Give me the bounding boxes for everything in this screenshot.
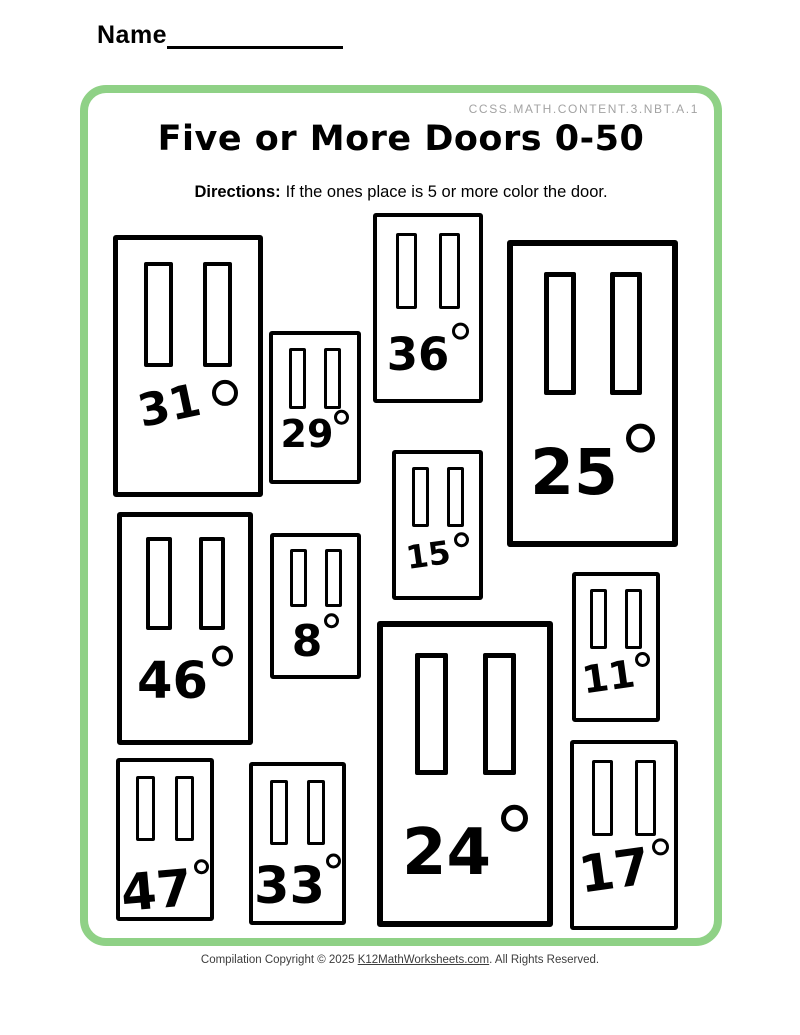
door-panel [199,537,225,630]
door-number: 8 [292,620,323,664]
door-number: 33 [254,861,325,912]
doorknob-icon [212,646,233,667]
door-panel [175,776,194,841]
footer: Compilation Copyright © 2025 K12MathWork… [0,954,800,966]
footer-link[interactable]: K12MathWorksheets.com [358,954,489,966]
doorknob-icon [194,859,209,874]
door-panel [544,272,576,395]
door-panel [396,233,417,309]
worksheet-page: Name CCSS.MATH.CONTENT.3.NBT.A.1 Five or… [0,0,800,1035]
door[interactable]: 46 [117,512,253,745]
door-panels [396,467,479,527]
footer-prefix: Compilation Copyright © 2025 [201,954,358,966]
door-label: 33 [253,861,342,912]
door-panels [377,233,479,309]
door[interactable]: 47 [116,758,214,921]
doors-area: 31362925154681124473317 [80,85,722,946]
door-panel [136,776,155,841]
door-panels [513,272,672,395]
door-panel [447,467,464,527]
door-number: 15 [404,536,453,574]
door-panel [592,760,613,836]
door-panel [289,348,306,409]
door-label: 31 [118,383,258,428]
door-panels [253,780,342,845]
worksheet-frame: CCSS.MATH.CONTENT.3.NBT.A.1 Five or More… [80,85,722,946]
door[interactable]: 24 [377,621,553,927]
doorknob-icon [501,805,528,832]
door-panels [576,589,656,649]
door[interactable]: 31 [113,235,263,497]
name-row: Name [97,20,343,49]
doorknob-icon [212,380,238,406]
door-number: 17 [575,841,652,901]
footer-suffix: . All Rights Reserved. [489,954,599,966]
door-label: 29 [273,415,357,453]
doorknob-icon [334,410,349,425]
door-panels [120,776,210,841]
doorknob-icon [324,613,339,628]
door-number: 31 [134,377,205,434]
door-panel [146,537,172,630]
door-number: 46 [137,656,208,707]
door-panel [203,262,232,367]
door-number: 25 [530,441,618,504]
doorknob-icon [652,838,669,855]
door[interactable]: 11 [572,572,660,722]
door-panels [118,262,258,367]
door-panel [610,272,642,395]
door-label: 11 [576,658,656,696]
doorknob-icon [626,424,655,453]
doorknob-icon [635,652,650,667]
door-number: 47 [118,863,193,920]
door[interactable]: 36 [373,213,483,403]
door-panel [307,780,325,845]
door-number: 29 [281,415,334,453]
door-number: 24 [402,821,491,885]
name-label: Name [97,22,167,50]
doorknob-icon [454,532,469,547]
door-panel [415,653,448,775]
door[interactable]: 33 [249,762,346,925]
door[interactable]: 17 [570,740,678,930]
door-panel [625,589,642,649]
doorknob-icon [452,323,469,340]
door-panel [483,653,516,775]
door-panel [590,589,607,649]
door-number: 36 [387,332,450,377]
door-panels [274,549,357,607]
door-panels [383,653,547,775]
door-label: 15 [396,539,479,571]
door[interactable]: 15 [392,450,483,600]
door-panel [412,467,429,527]
door-panel [439,233,460,309]
door-panel [290,549,307,607]
door-label: 24 [383,821,547,885]
name-blank-line[interactable] [167,20,343,49]
door-panel [324,348,341,409]
door-panel [144,262,173,367]
door-panels [122,537,248,630]
door-panel [635,760,656,836]
door-label: 8 [274,620,357,664]
door-panels [273,348,357,409]
door[interactable]: 8 [270,533,361,679]
door-panel [325,549,342,607]
door-label: 47 [120,866,210,917]
door-number: 11 [579,655,637,700]
door-label: 36 [377,332,479,377]
door-panel [270,780,288,845]
door-label: 17 [574,846,674,897]
doorknob-icon [326,854,341,869]
door[interactable]: 29 [269,331,361,484]
door-label: 46 [122,656,248,707]
door[interactable]: 25 [507,240,678,547]
door-label: 25 [513,441,672,504]
door-panels [574,760,674,836]
